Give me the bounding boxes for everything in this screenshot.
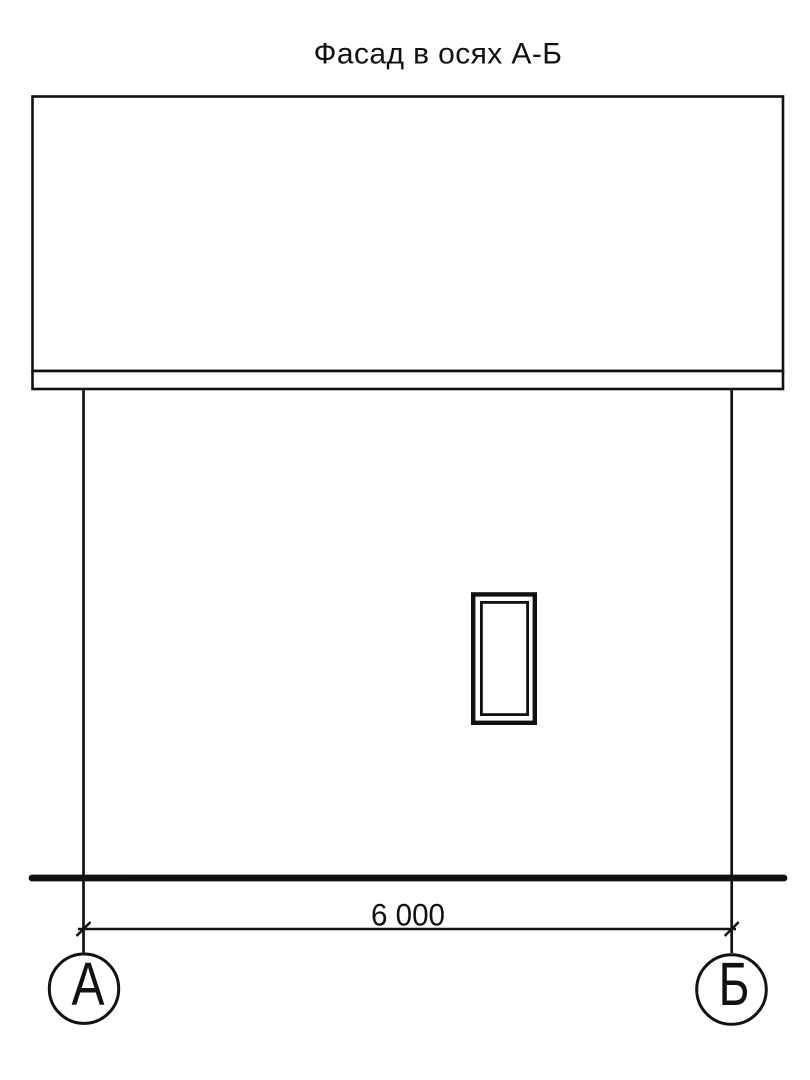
svg-text:6 000: 6 000	[371, 897, 445, 933]
svg-text:Фасад в осях А-Б: Фасад в осях А-Б	[314, 38, 563, 71]
svg-text:А: А	[72, 950, 105, 1018]
svg-text:Б: Б	[719, 950, 750, 1018]
